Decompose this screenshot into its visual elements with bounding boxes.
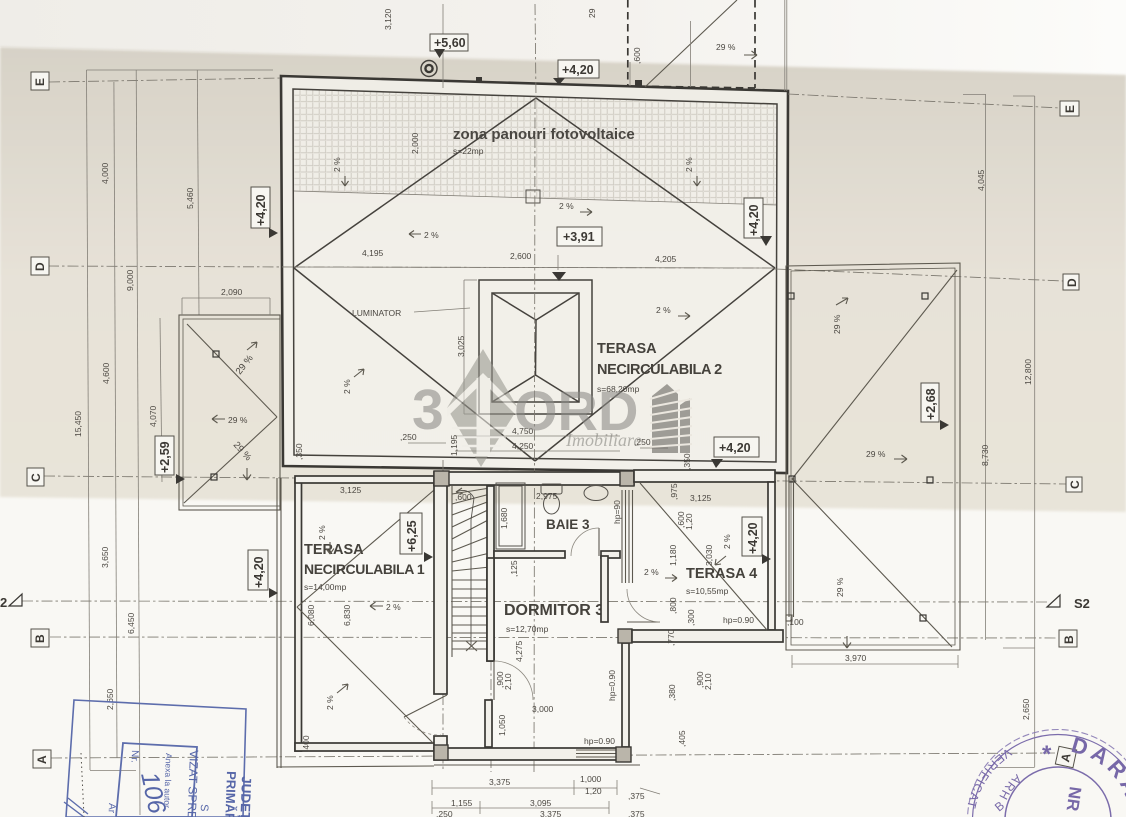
svg-text:29: 29: [587, 8, 597, 18]
svg-text:4,045: 4,045: [976, 169, 986, 191]
svg-text:4,070: 4,070: [148, 405, 158, 427]
svg-text:1,20: 1,20: [585, 786, 602, 796]
svg-text:+4,20: +4,20: [719, 441, 751, 455]
svg-text:+4,20: +4,20: [254, 194, 268, 226]
svg-text:2,090: 2,090: [221, 287, 243, 297]
svg-text:C: C: [29, 473, 43, 482]
svg-text:2 %: 2 %: [332, 157, 342, 172]
svg-text:,350: ,350: [682, 453, 692, 470]
svg-text:zona panouri fotovoltaice: zona panouri fotovoltaice: [453, 126, 635, 143]
svg-text:29 %: 29 %: [835, 577, 845, 597]
svg-text:9,000: 9,000: [125, 269, 135, 291]
svg-text:3,375: 3,375: [489, 777, 511, 787]
svg-text:C: C: [1068, 480, 1082, 489]
svg-text:TERASA 4: TERASA 4: [686, 566, 757, 582]
svg-text:4,250: 4,250: [512, 441, 534, 451]
svg-text:,350: ,350: [294, 443, 304, 460]
svg-text:hp=0.90: hp=0.90: [584, 736, 615, 746]
svg-text:2 %: 2 %: [684, 157, 694, 172]
svg-text:Ar: Ar: [106, 803, 117, 814]
svg-text:15,450: 15,450: [73, 411, 83, 437]
svg-text:+6,25: +6,25: [405, 520, 419, 552]
svg-text:,300: ,300: [686, 609, 696, 626]
svg-text:+5,60: +5,60: [434, 36, 466, 50]
svg-text:1,050: 1,050: [497, 714, 507, 736]
svg-text:2 %: 2 %: [317, 525, 327, 540]
svg-text:3: 3: [412, 378, 444, 442]
svg-text:6,450: 6,450: [126, 612, 136, 634]
svg-text:3,000: 3,000: [532, 704, 554, 714]
svg-text:29 %: 29 %: [866, 449, 886, 459]
svg-text:B: B: [33, 634, 47, 643]
svg-text:,125: ,125: [509, 560, 519, 577]
svg-text:2 %: 2 %: [559, 201, 574, 211]
svg-text:*: *: [1042, 741, 1052, 768]
svg-text:2 %: 2 %: [386, 602, 401, 612]
svg-text:D: D: [1065, 278, 1079, 287]
svg-text:2 %: 2 %: [342, 379, 352, 394]
svg-text:LUMINATOR: LUMINATOR: [352, 308, 401, 318]
svg-text:3,375: 3,375: [540, 809, 562, 817]
svg-text:2,600: 2,600: [510, 251, 532, 261]
svg-text:2 %: 2 %: [656, 305, 671, 315]
svg-text:s=14,00mp: s=14,00mp: [304, 582, 347, 592]
svg-text:3,125: 3,125: [690, 493, 712, 503]
svg-text:4,275: 4,275: [514, 640, 524, 662]
svg-text:hp=0.90: hp=0.90: [607, 670, 617, 701]
svg-text:s=12,70mp: s=12,70mp: [506, 624, 549, 634]
svg-text:2,10: 2,10: [703, 673, 713, 690]
svg-text:3,125: 3,125: [340, 485, 362, 495]
svg-text:12,800: 12,800: [1023, 359, 1033, 385]
svg-text:,250: ,250: [436, 809, 453, 817]
svg-text:6,830: 6,830: [342, 604, 352, 626]
svg-text:3,650: 3,650: [100, 546, 110, 568]
svg-text:5,460: 5,460: [185, 187, 195, 209]
svg-text:1,000: 1,000: [580, 774, 602, 784]
svg-text:Imobiliare: Imobiliare: [565, 430, 641, 450]
svg-text:s=10,55mp: s=10,55mp: [686, 586, 729, 596]
svg-text:,100: ,100: [787, 617, 804, 627]
svg-text:3,970: 3,970: [845, 653, 867, 663]
svg-text:B: B: [1062, 635, 1076, 644]
svg-text:hp=90: hp=90: [612, 500, 622, 524]
svg-text:2 %: 2 %: [644, 567, 659, 577]
svg-text:2 %: 2 %: [325, 695, 335, 710]
svg-text:+4,20: +4,20: [747, 204, 761, 236]
svg-text:,375: ,375: [628, 809, 645, 817]
svg-text:8,730: 8,730: [980, 444, 990, 466]
svg-text:PRIMĂRIA: PRIMĂRIA: [222, 771, 239, 817]
svg-text:Nr.: Nr.: [129, 750, 140, 763]
svg-text:3,095: 3,095: [530, 798, 552, 808]
svg-text:,600: ,600: [632, 47, 642, 64]
svg-text:BAIE 3: BAIE 3: [546, 517, 590, 532]
svg-text:3,030: 3,030: [704, 544, 714, 566]
svg-text:2,000: 2,000: [410, 132, 420, 154]
svg-text:2 %: 2 %: [722, 534, 732, 549]
svg-text:1,180: 1,180: [668, 544, 678, 566]
svg-text:,405: ,405: [677, 730, 687, 747]
svg-text:2,650: 2,650: [1021, 698, 1031, 720]
svg-text:+3,91: +3,91: [563, 230, 595, 244]
svg-text:1,680: 1,680: [499, 507, 509, 529]
svg-text:2,10: 2,10: [503, 673, 513, 690]
svg-text:NR: NR: [1063, 785, 1085, 812]
svg-text:6,080: 6,080: [306, 604, 316, 626]
svg-text:4,600: 4,600: [101, 362, 111, 384]
svg-text:,770: ,770: [666, 629, 676, 646]
svg-text:29 %: 29 %: [832, 314, 842, 334]
svg-text:29 %: 29 %: [716, 42, 736, 52]
svg-text:2,975: 2,975: [536, 491, 558, 501]
svg-text:4,205: 4,205: [655, 254, 677, 264]
svg-text:1,155: 1,155: [451, 798, 473, 808]
svg-text:,800: ,800: [668, 597, 678, 614]
svg-text:2,650: 2,650: [105, 688, 115, 710]
svg-text:3,120: 3,120: [383, 8, 393, 30]
svg-text:DORMITOR 3: DORMITOR 3: [504, 602, 604, 619]
svg-text:+4,20: +4,20: [746, 522, 760, 554]
svg-text:4,195: 4,195: [362, 248, 384, 258]
svg-text:+2,68: +2,68: [924, 388, 938, 420]
svg-text:hp=0.90: hp=0.90: [723, 615, 754, 625]
svg-text:29 %: 29 %: [228, 415, 248, 425]
svg-text:TERASA: TERASA: [597, 341, 657, 357]
svg-text:D: D: [33, 262, 47, 271]
svg-text:+2,59: +2,59: [158, 441, 172, 473]
svg-text:S2: S2: [1074, 596, 1090, 611]
svg-text:NECIRCULABILA 2: NECIRCULABILA 2: [597, 362, 722, 378]
svg-text:,600: ,600: [455, 492, 472, 502]
svg-text:+4,20: +4,20: [252, 556, 266, 588]
svg-text:,400: ,400: [301, 735, 311, 752]
svg-text:s=22mp: s=22mp: [453, 146, 484, 156]
svg-text:E: E: [33, 78, 47, 86]
svg-text:A: A: [35, 755, 49, 764]
svg-text:VIZAT SPRE: VIZAT SPRE: [185, 750, 201, 817]
svg-text:TERASA: TERASA: [304, 542, 364, 558]
svg-text:3,025: 3,025: [456, 335, 466, 357]
svg-text:4,000: 4,000: [100, 162, 110, 184]
svg-text:1,20: 1,20: [684, 513, 694, 530]
svg-text:,975: ,975: [669, 483, 679, 500]
svg-text:2 %: 2 %: [424, 230, 439, 240]
svg-text:E: E: [1063, 105, 1077, 113]
svg-text:,375: ,375: [628, 791, 645, 801]
svg-text:,380: ,380: [667, 684, 677, 701]
svg-text:+4,20: +4,20: [562, 63, 594, 77]
svg-text:NECIRCULABILA 1: NECIRCULABILA 1: [304, 561, 425, 577]
svg-text:2: 2: [0, 595, 7, 610]
